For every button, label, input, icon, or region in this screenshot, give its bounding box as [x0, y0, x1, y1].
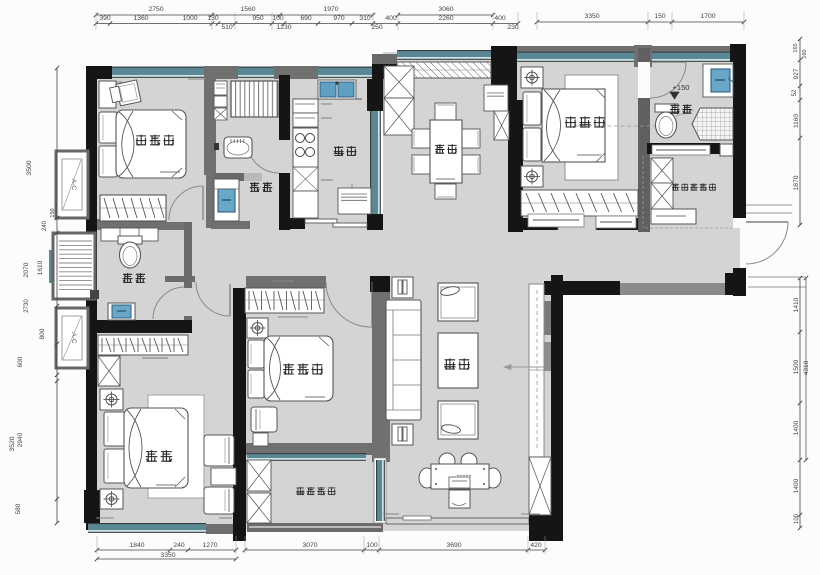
svg-text:1000: 1000	[182, 15, 197, 22]
svg-text:3500: 3500	[26, 160, 33, 175]
svg-text:2070: 2070	[23, 262, 30, 277]
svg-text:950: 950	[252, 15, 264, 22]
svg-text:2260: 2260	[438, 15, 453, 22]
svg-text:230: 230	[507, 24, 519, 31]
svg-text:310: 310	[359, 15, 371, 22]
svg-text:510: 510	[221, 24, 233, 31]
svg-text:1840: 1840	[129, 542, 144, 549]
svg-text:1970: 1970	[323, 6, 338, 13]
svg-text:580: 580	[15, 503, 22, 514]
svg-text:600: 600	[17, 356, 24, 367]
svg-text:400: 400	[494, 15, 506, 22]
svg-text:3690: 3690	[446, 542, 461, 549]
svg-text:1870: 1870	[793, 175, 800, 190]
svg-text:160: 160	[802, 49, 808, 58]
svg-text:100: 100	[272, 15, 284, 22]
svg-text:3520: 3520	[9, 436, 16, 451]
svg-text:240: 240	[173, 542, 185, 549]
svg-text:1560: 1560	[240, 6, 255, 13]
svg-text:3350: 3350	[160, 552, 175, 559]
svg-text:2940: 2940	[17, 432, 24, 447]
svg-text:1160: 1160	[793, 114, 800, 128]
svg-text:52: 52	[792, 89, 798, 96]
svg-text:100: 100	[794, 513, 800, 524]
svg-text:3070: 3070	[302, 542, 317, 549]
svg-text:1400: 1400	[793, 420, 800, 435]
svg-text:4310: 4310	[803, 360, 810, 375]
svg-text:150: 150	[654, 13, 666, 20]
svg-text:240: 240	[42, 220, 48, 231]
svg-text:1700: 1700	[700, 13, 715, 20]
svg-text:2730: 2730	[24, 299, 30, 313]
svg-text:3350: 3350	[584, 13, 599, 20]
svg-text:400: 400	[385, 15, 397, 22]
svg-text:690: 690	[300, 15, 312, 22]
svg-text:2750: 2750	[148, 6, 163, 13]
svg-text:1360: 1360	[133, 15, 148, 22]
svg-text:800: 800	[39, 328, 46, 339]
svg-text:165: 165	[793, 43, 799, 52]
svg-text:150: 150	[50, 208, 56, 217]
svg-text:390: 390	[99, 15, 111, 22]
svg-text:1500: 1500	[793, 359, 800, 374]
svg-text:927: 927	[793, 68, 800, 79]
svg-text:+150: +150	[673, 83, 690, 92]
svg-text:1610: 1610	[37, 260, 44, 275]
svg-text:130: 130	[207, 15, 219, 22]
svg-text:100: 100	[366, 542, 378, 549]
svg-text:1230: 1230	[276, 24, 291, 31]
svg-text:970: 970	[333, 15, 345, 22]
svg-text:3060: 3060	[438, 6, 453, 13]
svg-text:1400: 1400	[793, 478, 800, 493]
svg-text:420: 420	[530, 542, 542, 549]
svg-text:1410: 1410	[793, 297, 800, 312]
svg-text:1270: 1270	[202, 542, 217, 549]
